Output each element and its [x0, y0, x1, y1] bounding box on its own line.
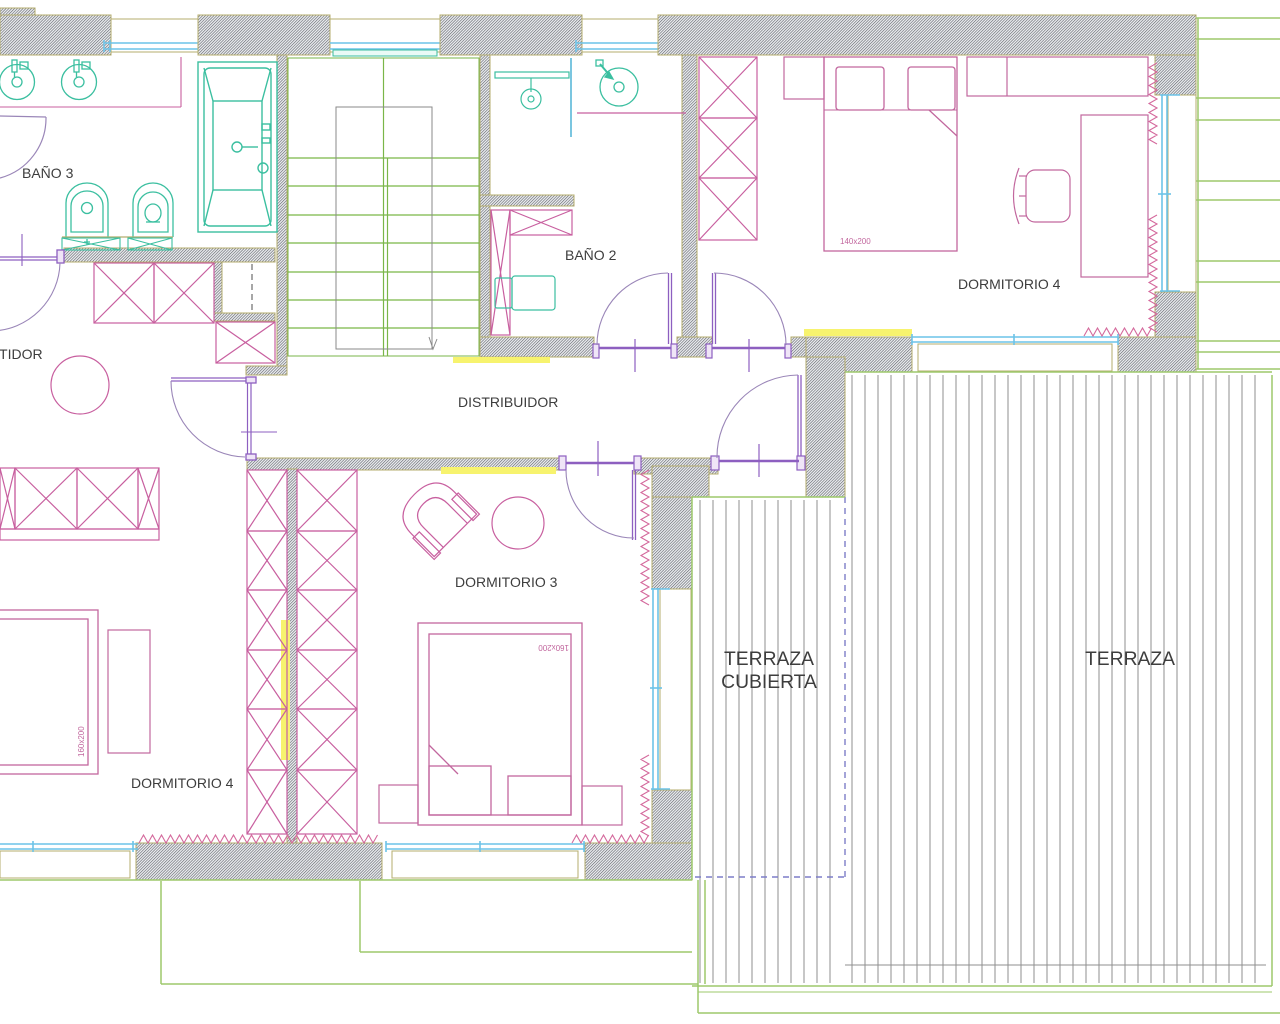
svg-text:BAÑO 2: BAÑO 2: [565, 247, 617, 263]
svg-text:BAÑO 3: BAÑO 3: [22, 165, 74, 181]
svg-text:DORMITORIO 4: DORMITORIO 4: [958, 276, 1061, 292]
svg-text:140x200: 140x200: [840, 237, 871, 246]
svg-text:DORMITORIO 4: DORMITORIO 4: [131, 775, 234, 791]
svg-text:CUBIERTA: CUBIERTA: [721, 672, 817, 693]
svg-text:160x200: 160x200: [77, 726, 86, 757]
svg-text:160x200: 160x200: [538, 643, 569, 652]
svg-text:VESTIDOR: VESTIDOR: [0, 346, 43, 362]
svg-text:TERRAZA: TERRAZA: [724, 649, 814, 670]
svg-text:TERRAZA: TERRAZA: [1085, 649, 1175, 670]
svg-text:DORMITORIO 3: DORMITORIO 3: [455, 574, 558, 590]
svg-text:DISTRIBUIDOR: DISTRIBUIDOR: [458, 394, 558, 410]
